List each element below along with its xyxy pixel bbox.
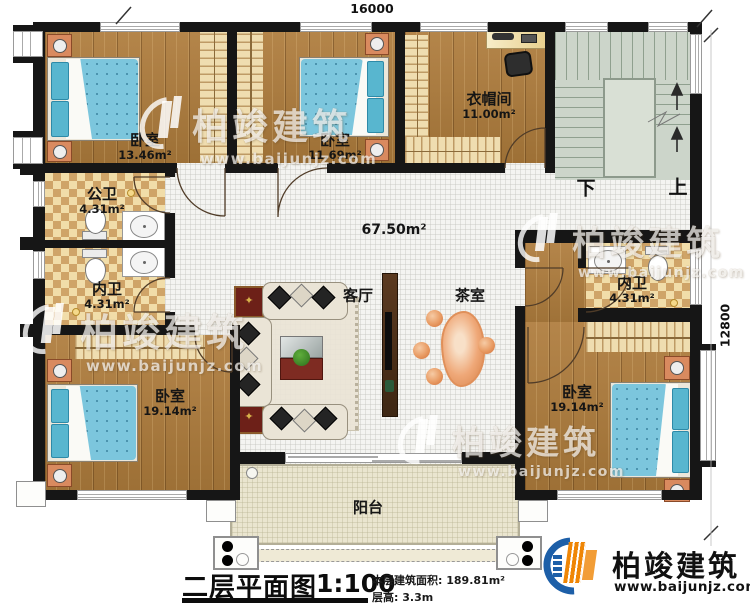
stair-flight-top	[555, 32, 690, 80]
sink-basin	[130, 251, 158, 274]
plant	[293, 349, 310, 366]
desk-item	[492, 33, 514, 40]
watermark: 柏竣建筑 www.baijunjz.com	[452, 416, 625, 480]
brand-logo-icon	[542, 537, 602, 595]
pilaster-box	[518, 500, 548, 522]
stair-flight-right	[656, 80, 690, 125]
nightstand	[365, 33, 389, 55]
watermark-logo-icon	[400, 414, 442, 466]
pillow	[51, 62, 69, 100]
stair-landing	[603, 78, 656, 178]
wall-interior	[33, 163, 177, 173]
window	[33, 181, 45, 207]
wall-cloakroom-left	[395, 22, 405, 173]
room-label-tea: 茶室	[455, 288, 485, 305]
watermark: 柏竣建筑 www.baijunjz.com	[572, 216, 745, 281]
tea-stool	[413, 342, 430, 359]
watermark-logo-icon	[25, 302, 69, 356]
pilaster-box	[16, 481, 46, 507]
floor-drain	[127, 189, 135, 197]
nightstand	[664, 356, 690, 380]
window	[690, 34, 702, 94]
floor-drain	[670, 299, 678, 307]
balcony-column	[213, 536, 259, 570]
brand-website: www.baijunjz.com	[614, 579, 750, 595]
bay-cap	[698, 461, 716, 467]
tea-stool	[478, 337, 495, 354]
floor-plan-canvas: 16000 12800	[0, 0, 750, 611]
drain-circle	[246, 467, 258, 479]
pillow	[51, 101, 69, 137]
tv-decor	[385, 380, 394, 392]
room-label-balcony: 阳台	[353, 500, 383, 517]
nightstand	[47, 464, 72, 487]
dimension-right: 12800	[718, 291, 733, 361]
balcony-column	[496, 536, 542, 570]
window	[557, 490, 662, 500]
pillow	[672, 388, 689, 430]
bay-cap	[13, 164, 45, 169]
bay-cap	[13, 57, 45, 63]
tv-screen	[385, 312, 392, 370]
watermark: 柏竣建筑 www.baijunjz.com	[80, 302, 263, 375]
window	[648, 22, 688, 32]
sink-basin	[130, 215, 158, 238]
pillow	[51, 424, 69, 458]
nightstand	[47, 34, 72, 57]
window	[77, 490, 187, 500]
dimension-top: 16000	[348, 1, 396, 16]
wall-bath-divider	[33, 240, 165, 248]
pilaster-box	[206, 500, 236, 522]
cloakroom-closet-bottom	[405, 137, 500, 164]
plan-info: 本层建筑面积: 189.81m² 层高: 3.3m	[372, 572, 505, 606]
balcony-step	[256, 549, 500, 562]
pillow	[367, 61, 384, 97]
pillow	[672, 431, 689, 473]
watermark-logo-icon	[142, 95, 188, 151]
room-label-bedroom-br: 卧室19.14m²	[550, 384, 603, 414]
wall-bath-right	[165, 213, 175, 278]
room-label-cloakroom: 衣帽间11.00m²	[462, 91, 515, 121]
title-underline	[182, 598, 368, 603]
bay-window	[13, 31, 43, 57]
desk-chair	[503, 50, 533, 78]
stair-flight-left	[555, 80, 603, 178]
window	[100, 22, 180, 32]
stairs-up-label: 上	[668, 173, 687, 200]
window	[300, 22, 372, 32]
wall-bath-right	[165, 163, 175, 177]
bay-window	[13, 137, 43, 164]
room-label-bedroom-bl: 卧室19.14m²	[143, 388, 196, 418]
cloakroom-closet-left	[405, 35, 428, 137]
room-label-living: 客厅	[343, 288, 373, 305]
wall-master-bath-bottom	[578, 308, 702, 322]
window	[33, 251, 45, 279]
stairs-down-label: 下	[576, 174, 595, 201]
wall-cloakroom-bottom	[395, 163, 505, 173]
nightstand	[47, 359, 72, 382]
tea-stool	[426, 310, 443, 327]
floor-drain	[72, 308, 80, 316]
bay-window	[700, 350, 716, 461]
pillow	[51, 389, 69, 423]
window	[565, 22, 608, 32]
toilet	[82, 249, 107, 258]
room-label-hall-area: 67.50m²	[361, 223, 426, 239]
watermark-logo-icon	[520, 212, 562, 264]
tea-stool	[426, 368, 443, 385]
pilaster	[20, 237, 33, 250]
nightstand	[47, 141, 72, 162]
watermark: 柏竣建筑 www.baijunjz.com	[192, 98, 377, 168]
window	[420, 22, 488, 32]
laptop	[521, 34, 537, 43]
closet-bedroom-br	[586, 322, 690, 352]
room-label-bath-public: 公卫4.31m²	[79, 186, 124, 216]
wall-stairwell-left	[545, 22, 555, 173]
